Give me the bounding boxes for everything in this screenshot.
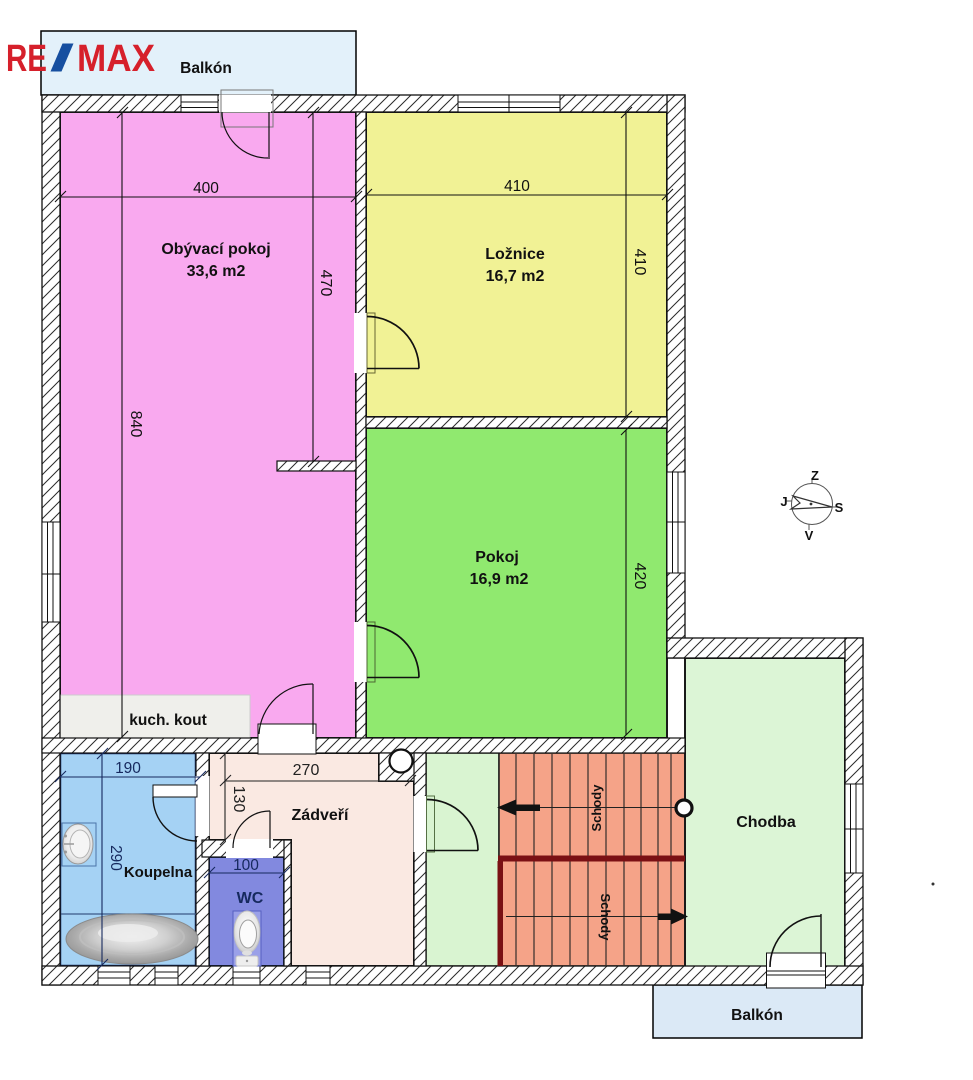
svg-text:33,6 m2: 33,6 m2 [187,263,246,280]
svg-text:WC: WC [237,890,264,907]
svg-text:840: 840 [127,411,144,438]
svg-text:Koupelna: Koupelna [124,864,193,881]
svg-text:S: S [835,500,844,515]
svg-text:Chodba: Chodba [736,814,796,831]
svg-text:Balkón: Balkón [180,60,232,77]
svg-text:16,7 m2: 16,7 m2 [486,268,545,285]
svg-text:MAX: MAX [77,38,156,80]
svg-text:270: 270 [293,762,320,779]
svg-text:RE: RE [6,38,47,80]
svg-text:100: 100 [233,857,259,874]
svg-text:Schody: Schody [598,894,613,942]
svg-text:Schody: Schody [589,784,604,832]
svg-text:470: 470 [317,270,334,297]
svg-text:400: 400 [193,180,219,197]
svg-text:16,9 m2: 16,9 m2 [470,571,529,588]
svg-text:130: 130 [230,786,247,813]
svg-text:410: 410 [631,249,648,276]
svg-text:190: 190 [115,760,141,777]
svg-text:Ložnice: Ložnice [485,246,545,263]
svg-text:kuch. kout: kuch. kout [129,712,207,729]
svg-text:290: 290 [107,845,124,871]
svg-text:420: 420 [631,563,648,590]
svg-text:J: J [780,494,787,509]
svg-text:Obývací pokoj: Obývací pokoj [161,241,270,258]
svg-text:V: V [805,528,814,543]
svg-text:Balkón: Balkón [731,1007,783,1024]
svg-text:Pokoj: Pokoj [475,549,519,566]
svg-text:410: 410 [504,178,530,195]
svg-text:Zádveří: Zádveří [292,807,349,824]
svg-text:Z: Z [811,468,819,483]
